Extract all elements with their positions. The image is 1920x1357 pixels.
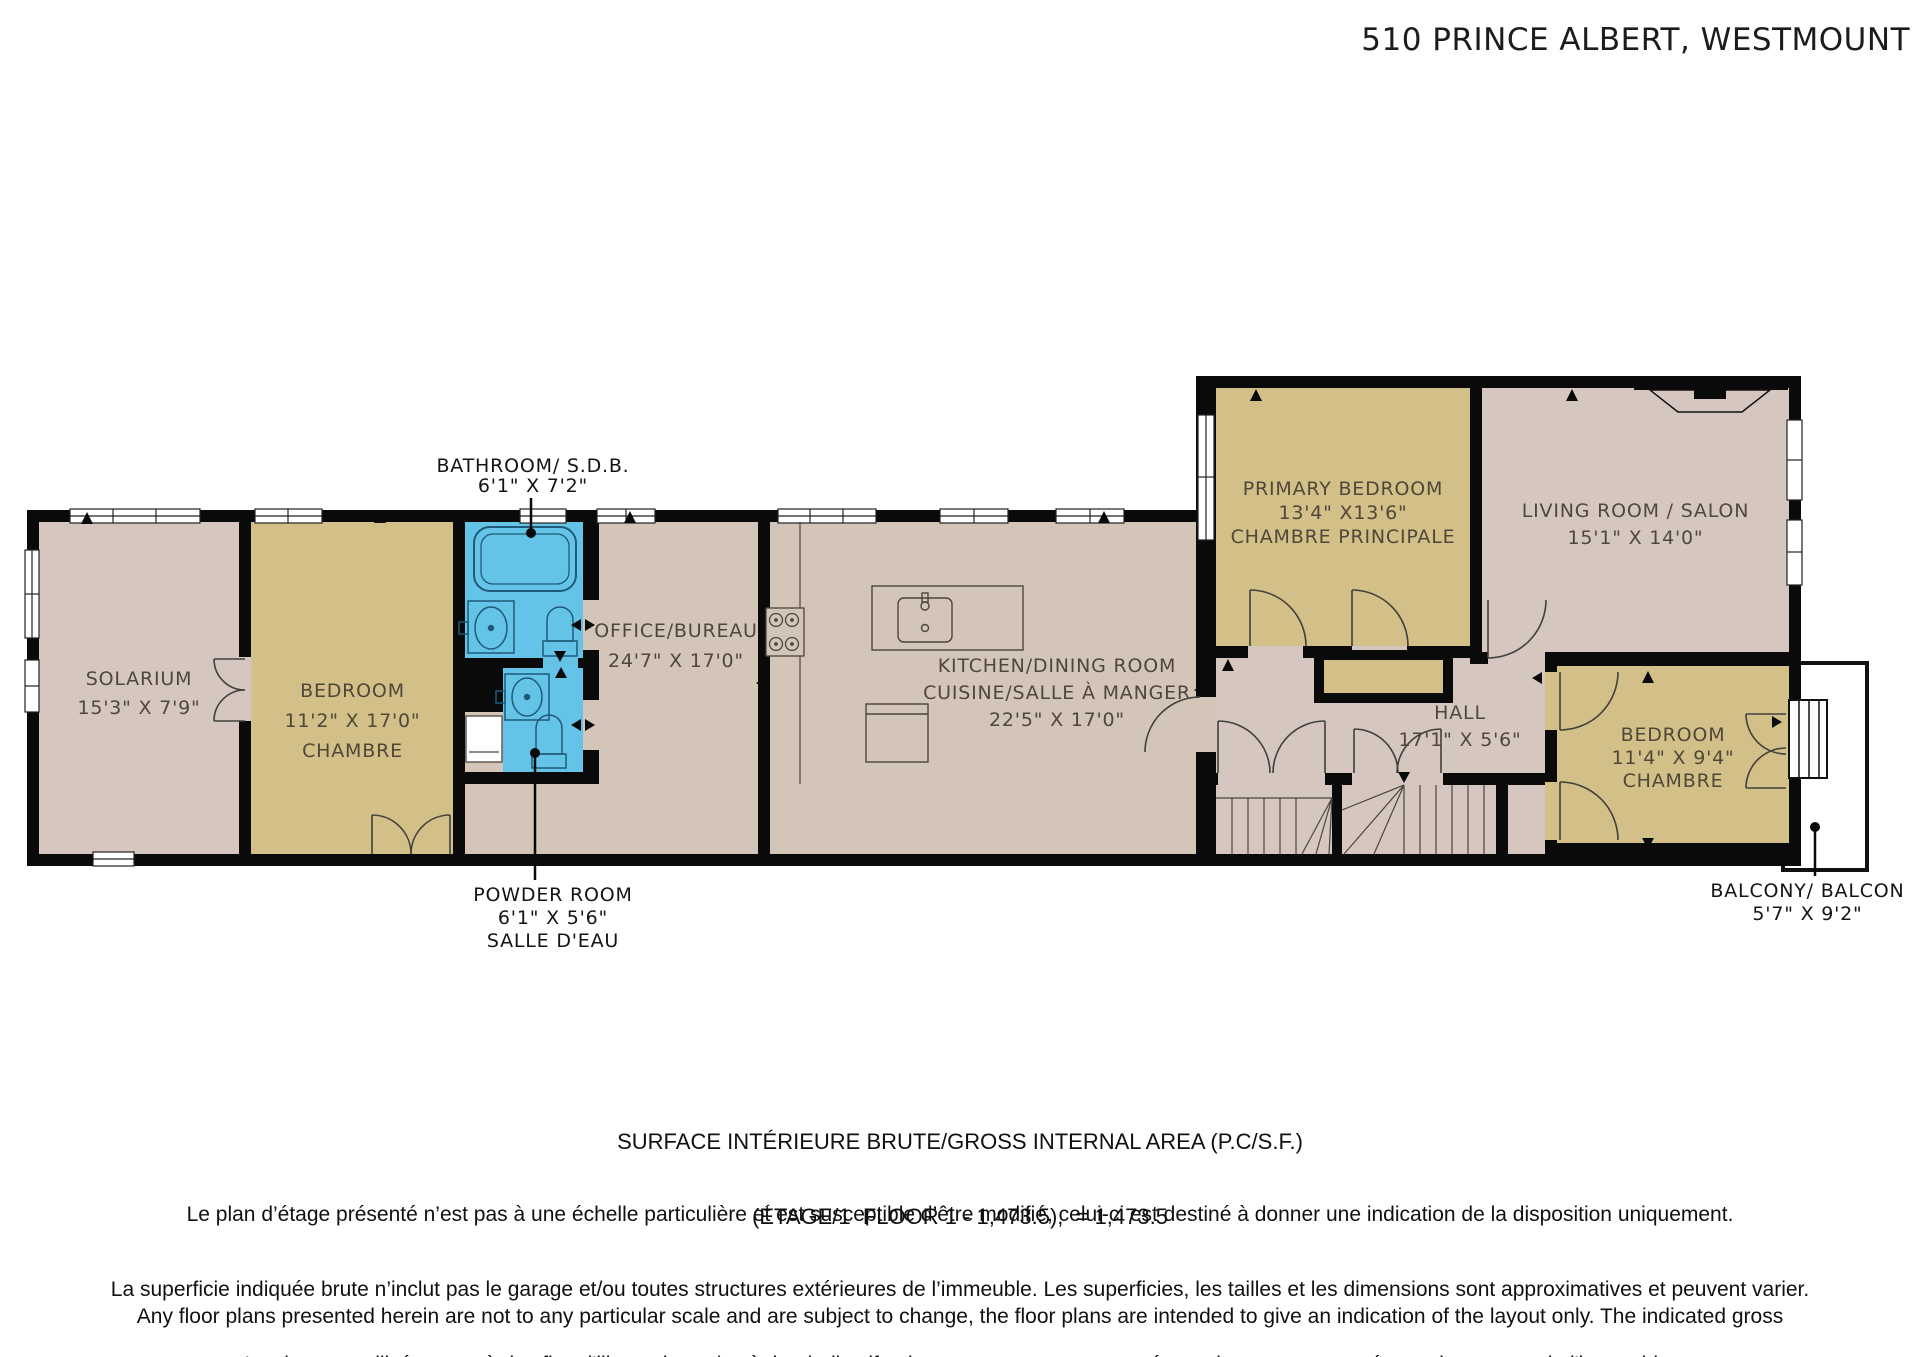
floor-plan-page: 510 PRINCE ALBERT, WESTMOUNT <box>0 0 1920 1357</box>
balcony-steps <box>1789 700 1827 778</box>
room-label-office: OFFICE/BUREAU24'7" X 17'0" <box>576 616 776 676</box>
room-label-powder-room: POWDER ROOM6'1" X 5'6"SALLE D'EAU <box>448 884 658 953</box>
room-label-bathroom: BATHROOM/ S.D.B.6'1" X 7'2" <box>428 456 638 496</box>
room-label-primary-bedroom: PRIMARY BEDROOM13'4" X13'6"CHAMBRE PRINC… <box>1218 477 1468 549</box>
room-label-living-room: LIVING ROOM / SALON15'1" X 14'0" <box>1483 498 1788 552</box>
room-label-solarium: SOLARIUM15'3" X 7'9" <box>39 665 239 723</box>
room-label-balcony: BALCONY/ BALCON5'7" X 9'2" <box>1700 880 1915 926</box>
linen-closet-icon <box>466 716 502 762</box>
room-label-hall: HALL17'1" X 5'6" <box>1360 700 1560 754</box>
disclaimer-english: Any floor plans presented herein are not… <box>0 1254 1920 1357</box>
room-label-kitchen: KITCHEN/DINING ROOMCUISINE/SALLE À MANGE… <box>907 653 1207 734</box>
room-label-bedroom-right: BEDROOM11'4" X 9'4"CHAMBRE <box>1573 724 1773 793</box>
room-label-bedroom-left: BEDROOM11'2" X 17'0"CHAMBRE <box>252 676 453 766</box>
